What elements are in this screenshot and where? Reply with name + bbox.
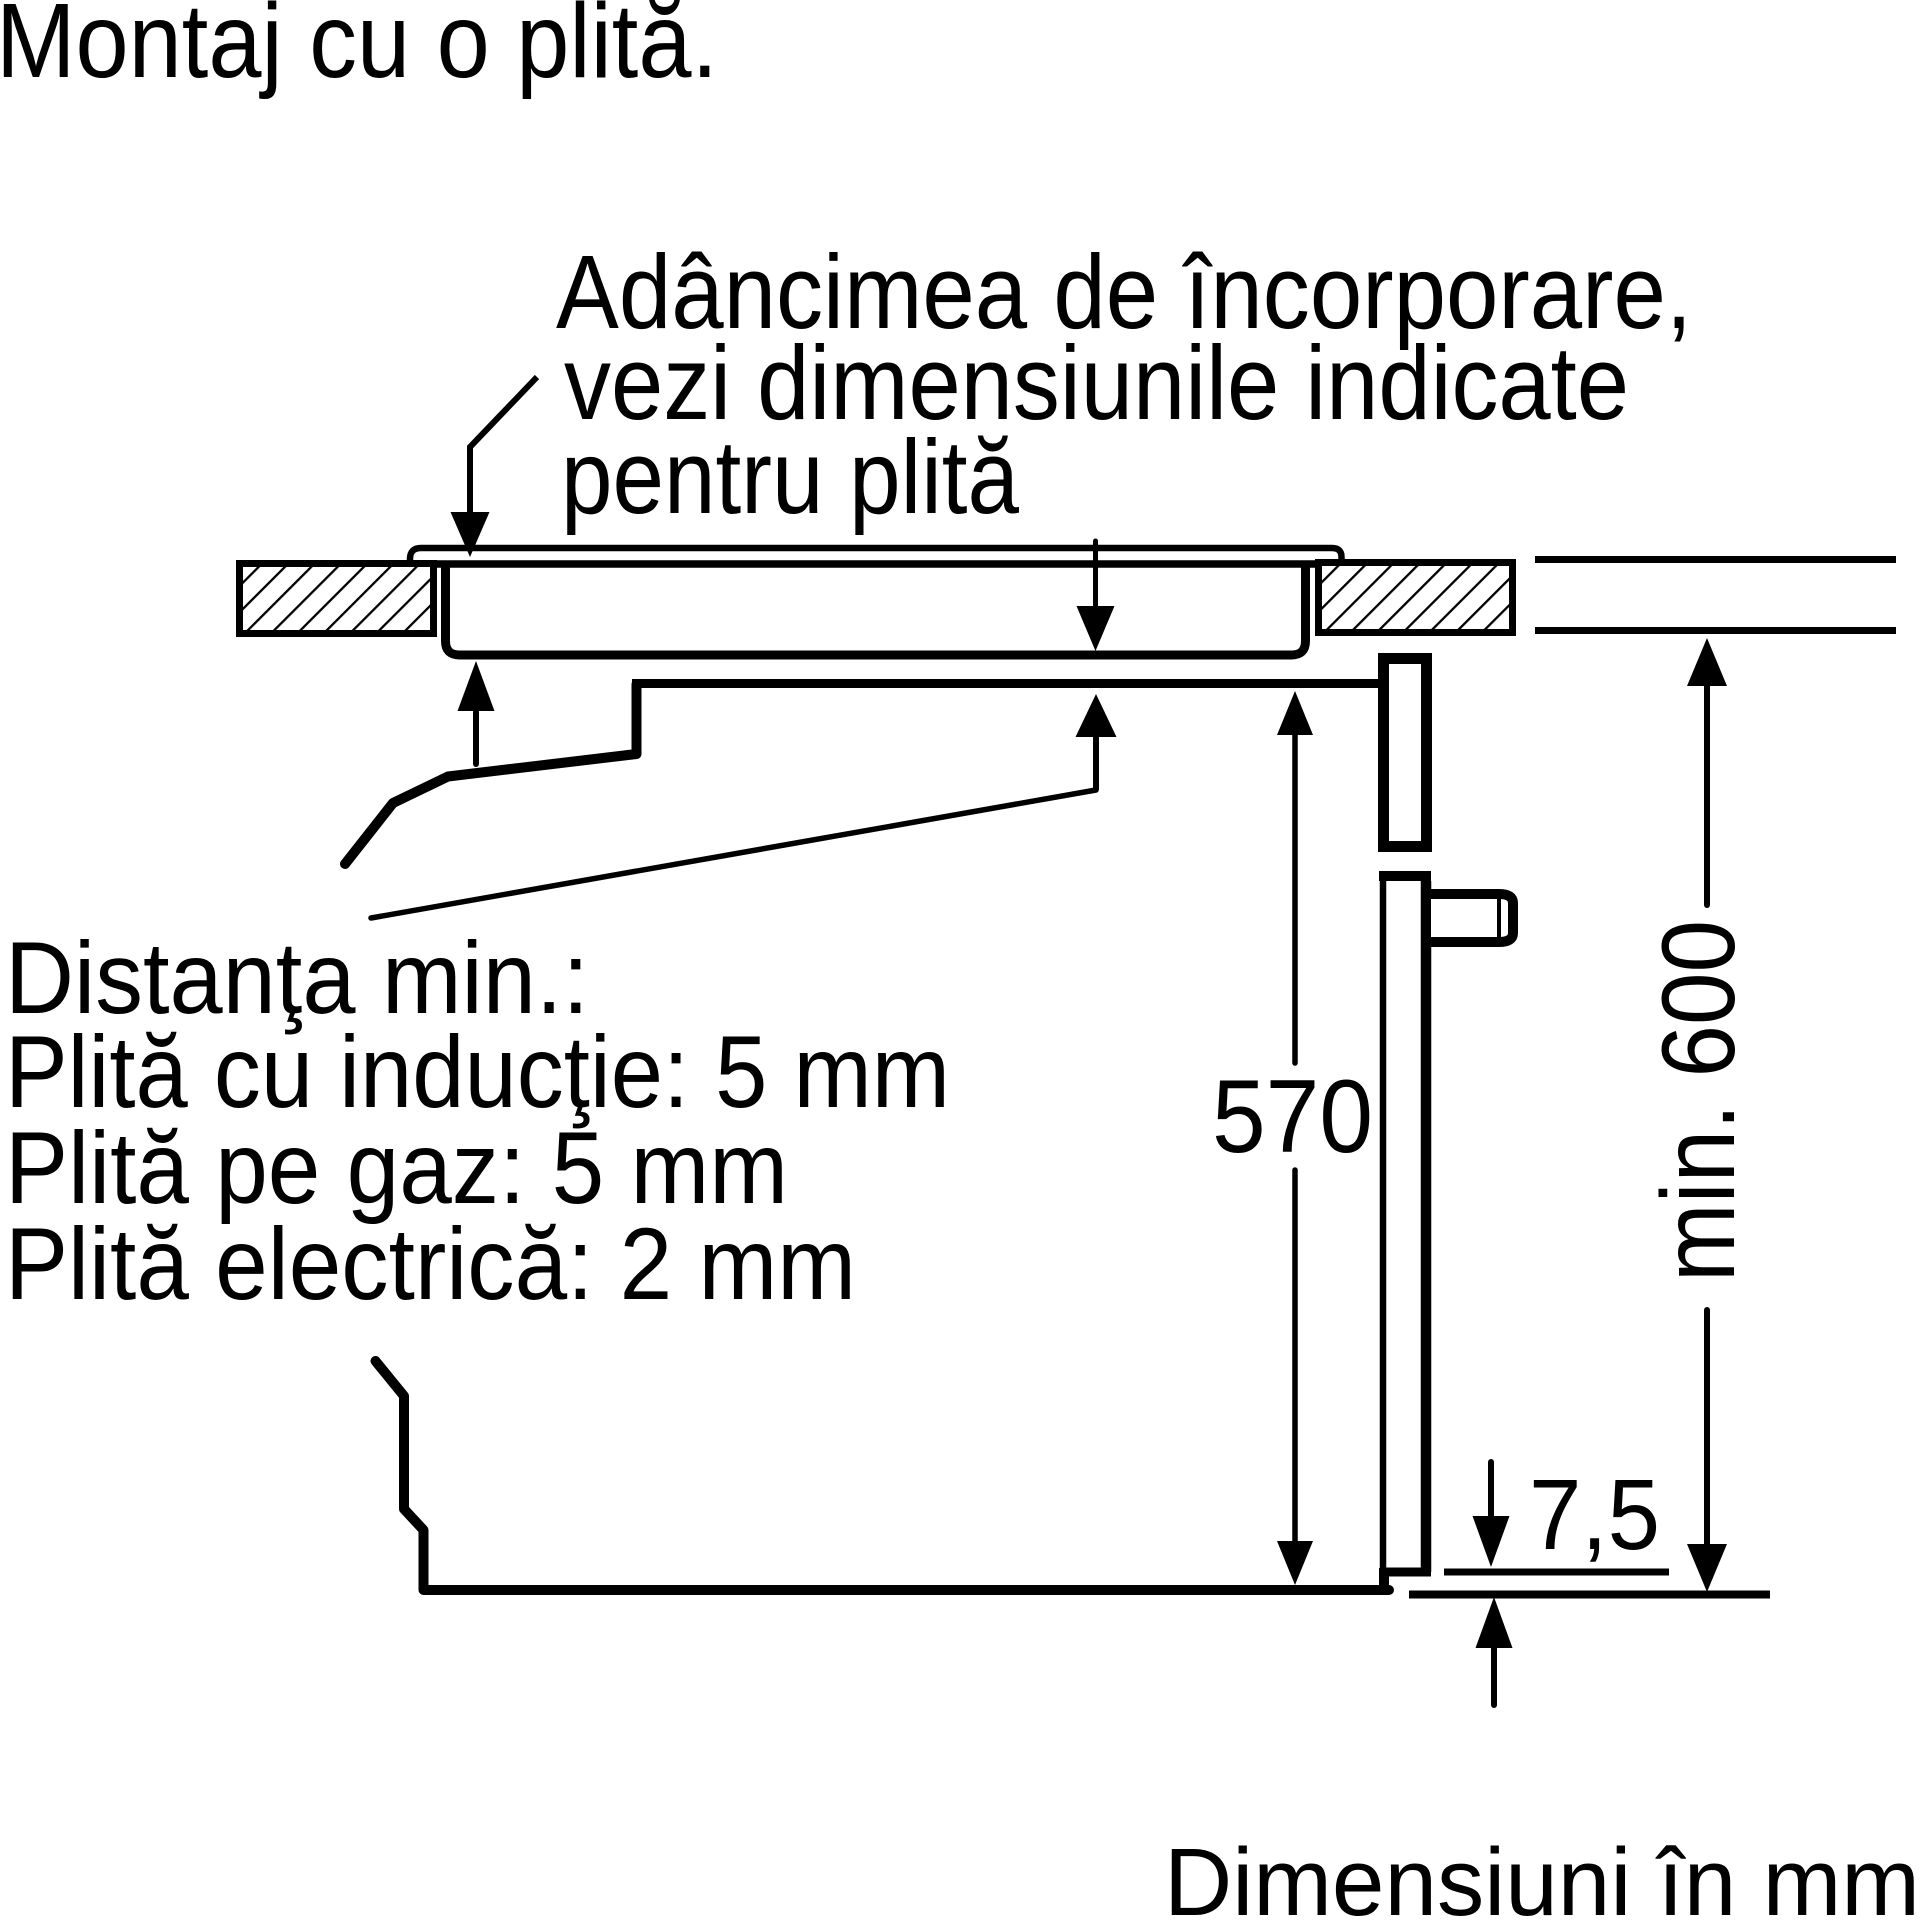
svg-text:7,5: 7,5 bbox=[1529, 1459, 1660, 1571]
svg-text:Plită electrică: 2 mm: Plită electrică: 2 mm bbox=[5, 1207, 856, 1321]
svg-text:Dimensiuni în mm: Dimensiuni în mm bbox=[1164, 1829, 1920, 1920]
svg-text:pentru plită: pentru plită bbox=[561, 419, 1020, 536]
svg-text:Montaj cu o plită.: Montaj cu o plită. bbox=[0, 0, 718, 100]
svg-text:570: 570 bbox=[1212, 1059, 1373, 1175]
svg-text:min. 600: min. 600 bbox=[1641, 920, 1757, 1282]
